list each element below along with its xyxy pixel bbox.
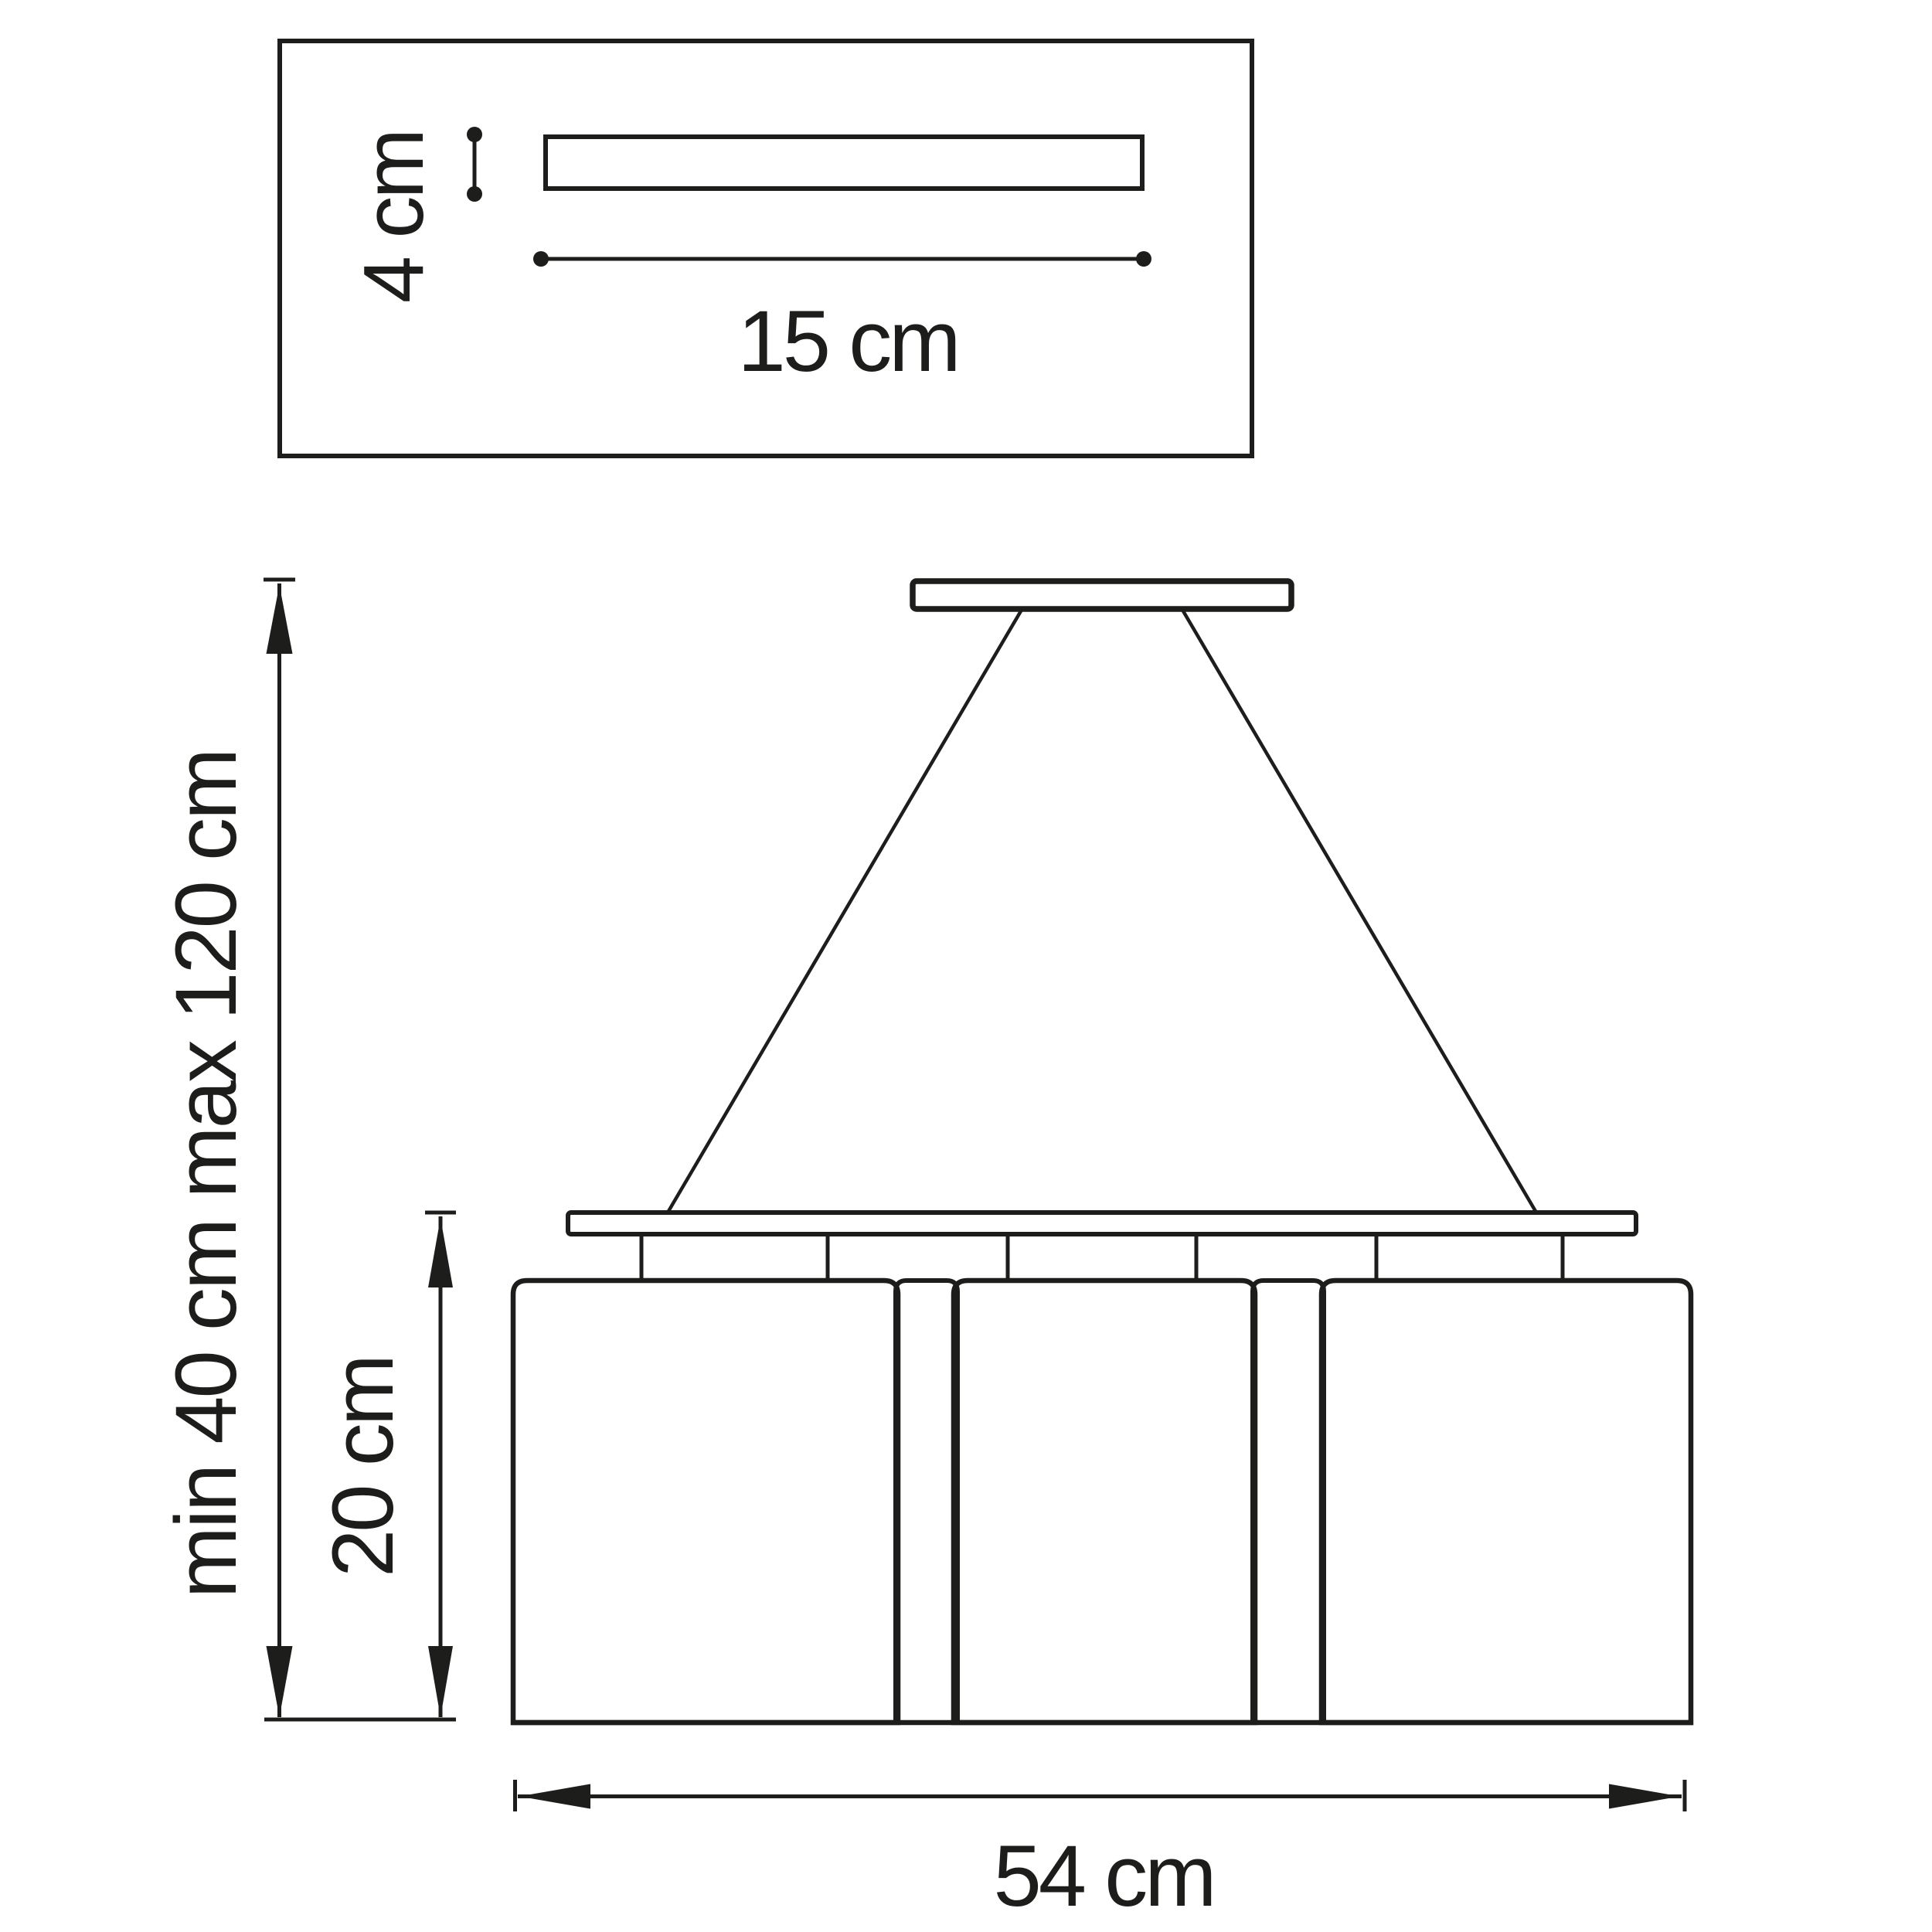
svg-text:15 cm: 15 cm [738, 293, 958, 389]
svg-text:54 cm: 54 cm [994, 1828, 1214, 1924]
svg-text:4 cm: 4 cm [346, 131, 441, 303]
svg-text:min 40 cm max 120 cm: min 40 cm max 120 cm [158, 750, 254, 1599]
svg-text:20 cm: 20 cm [315, 1357, 411, 1577]
